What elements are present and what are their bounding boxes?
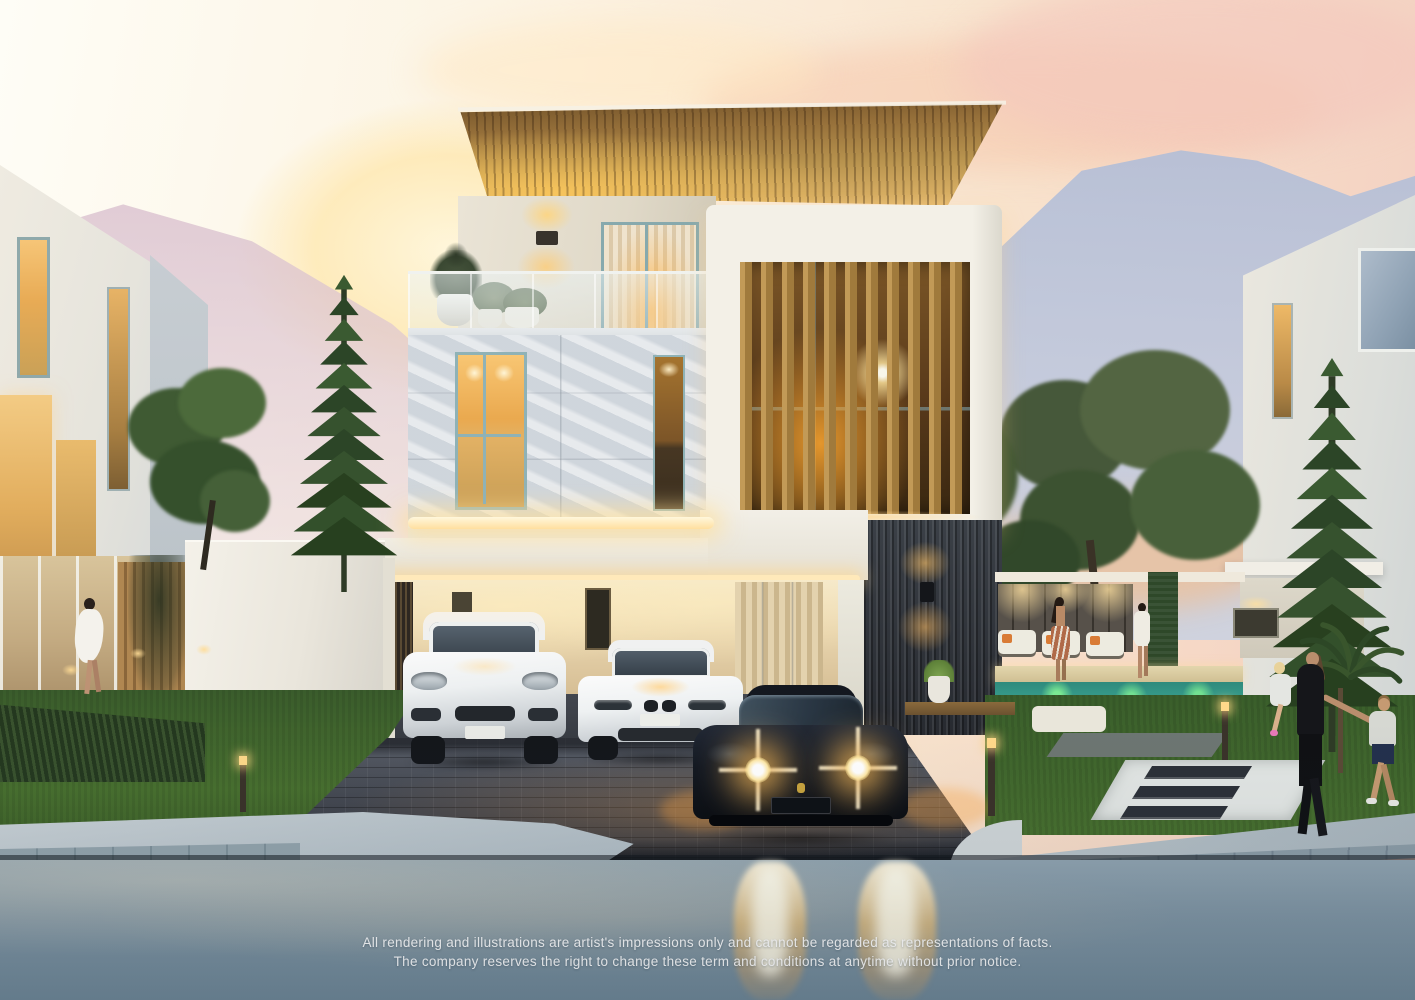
- pool-pavilion-beam: [995, 572, 1245, 582]
- white-suv: [403, 608, 566, 766]
- garden-light-glow: [130, 648, 146, 659]
- pool-bench: [1032, 706, 1106, 732]
- child-shoe: [1270, 730, 1278, 736]
- sedan-windshield: [612, 648, 710, 678]
- suv-headlight: [522, 672, 558, 690]
- carport-glass-partition: [735, 582, 823, 700]
- garden-path: [1047, 733, 1229, 757]
- wall-lamp: [536, 231, 558, 245]
- carried-child-head: [1274, 662, 1285, 674]
- carport-fascia-right: [700, 510, 868, 580]
- second-floor-lit-window: [455, 352, 527, 510]
- stepping-stone: [1120, 806, 1228, 819]
- wall-sconce: [920, 582, 934, 602]
- disclaimer-text: All rendering and illustrations are arti…: [0, 933, 1415, 971]
- left-villa-narrow-window: [107, 287, 130, 491]
- carport-fascia: [378, 538, 708, 580]
- left-villa-glass-wall: [0, 395, 52, 580]
- front-splitter: [709, 815, 893, 826]
- sedan-grille: [662, 700, 676, 712]
- sconce-down-glow: [896, 600, 954, 654]
- left-villa-glass-wall: [56, 440, 96, 565]
- right-villa-glass-window: [1358, 248, 1415, 352]
- sedan-grille: [644, 700, 658, 712]
- boy-shoe: [1366, 798, 1377, 804]
- stepping-stone: [1144, 766, 1252, 779]
- suv-intake: [528, 708, 558, 721]
- pool-lounger: [998, 630, 1036, 654]
- timber-roof-canopy: [455, 95, 1010, 210]
- carried-child: [1270, 674, 1291, 706]
- suv-grille: [455, 706, 515, 721]
- led-cove-light: [408, 517, 714, 529]
- bollard-light: [240, 760, 246, 812]
- window-mullion: [483, 352, 486, 504]
- boy-shirt: [1369, 711, 1396, 746]
- license-plate: [640, 714, 680, 726]
- stepping-stone: [1132, 786, 1240, 799]
- headlight-flare: [745, 757, 771, 783]
- timber-louvers: [740, 262, 970, 514]
- balcony-glass-railing: [408, 271, 718, 334]
- wheel: [411, 736, 445, 764]
- timber-planter: [905, 702, 1015, 715]
- background-tree: [1130, 450, 1260, 560]
- mother-body: [1297, 664, 1324, 736]
- white-pot: [928, 676, 950, 703]
- bollard-lamp: [239, 756, 247, 765]
- tree-silhouette: [128, 555, 190, 705]
- woman-in-white-dress: [68, 598, 114, 700]
- headlight-ground-spill: [900, 788, 990, 828]
- boy-head: [1378, 698, 1390, 711]
- left-villa-lit-window: [17, 237, 50, 378]
- bollard-lamp: [1221, 702, 1229, 711]
- architectural-rendering: All rendering and illustrations are arti…: [0, 0, 1415, 1000]
- bollard-light: [1222, 706, 1228, 760]
- street: [0, 860, 1415, 1000]
- boy-shorts: [1372, 744, 1394, 764]
- woman-at-pool: [1045, 597, 1075, 682]
- second-floor-narrow-window: [653, 355, 685, 511]
- license-plate: [465, 726, 505, 739]
- boy-shoe: [1388, 800, 1399, 806]
- woman-in-white-at-pool: [1130, 603, 1156, 685]
- sconce-up-glow: [898, 540, 952, 586]
- sports-car-windshield: [739, 695, 863, 729]
- dark-sports-car: [693, 685, 908, 850]
- wall-lamp-up-glow: [520, 196, 574, 234]
- garden-light-glow: [196, 644, 212, 655]
- disclaimer-line-1: All rendering and illustrations are arti…: [0, 933, 1415, 952]
- wheel: [588, 736, 618, 760]
- norfolk-pine-left: [286, 262, 402, 592]
- car-shadow: [698, 831, 903, 847]
- disclaimer-line-2: The company reserves the right to change…: [0, 952, 1415, 971]
- car-badge: [797, 783, 805, 793]
- license-plate: [771, 797, 831, 814]
- pool-lounger: [1086, 632, 1124, 656]
- sedan-headlight: [594, 700, 632, 710]
- headlight-flare: [845, 755, 871, 781]
- suv-headlight: [411, 672, 447, 690]
- suv-intake: [411, 708, 441, 721]
- family-walking: [1262, 648, 1414, 843]
- window-transom: [455, 434, 521, 437]
- bollard-lamp: [987, 738, 996, 748]
- wheel: [524, 736, 558, 764]
- sedan-intake: [618, 728, 703, 741]
- mother-arm: [1322, 694, 1375, 725]
- tree-canopy: [178, 368, 266, 438]
- bollard-light: [988, 742, 995, 816]
